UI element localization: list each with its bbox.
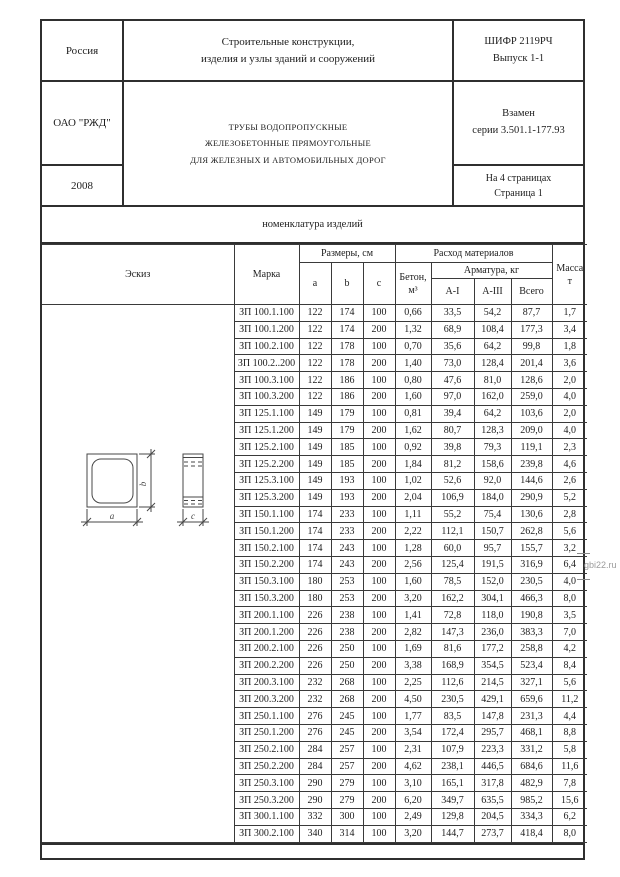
value-cell: 2,56	[395, 556, 431, 573]
value-cell: 253	[331, 590, 363, 607]
value-cell: 144,7	[431, 825, 474, 842]
value-cell: 0,92	[395, 439, 431, 456]
value-cell: 100	[363, 607, 395, 624]
mark-cell: ЗП 250.3.200	[234, 792, 299, 809]
value-cell: 1,62	[395, 422, 431, 439]
value-cell: 185	[331, 456, 363, 473]
mark-cell: ЗП 125.1.100	[234, 405, 299, 422]
mark-cell: ЗП 150.2.100	[234, 540, 299, 557]
value-cell: 284	[299, 758, 331, 775]
value-cell: 1,7	[552, 305, 587, 322]
col-header-c: c	[363, 263, 395, 305]
value-cell: 0,70	[395, 338, 431, 355]
mark-cell: ЗП 125.2.100	[234, 439, 299, 456]
value-cell: 81,2	[431, 456, 474, 473]
value-cell: 100	[363, 540, 395, 557]
value-cell: 122	[299, 355, 331, 372]
value-cell: 122	[299, 305, 331, 322]
value-cell: 11,2	[552, 691, 587, 708]
col-header-materials: Расход материалов	[395, 245, 552, 263]
year-cell: 2008	[42, 166, 124, 205]
value-cell: 144,6	[511, 472, 552, 489]
value-cell: 149	[299, 456, 331, 473]
value-cell: 1,60	[395, 388, 431, 405]
value-cell: 243	[331, 540, 363, 557]
value-cell: 200	[363, 724, 395, 741]
mark-cell: ЗП 100.2..200	[234, 355, 299, 372]
pipe-cross-section-sketch: b a c	[42, 447, 234, 542]
value-cell: 2,8	[552, 506, 587, 523]
value-cell: 0,66	[395, 305, 431, 322]
value-cell: 279	[331, 775, 363, 792]
value-cell: 239,8	[511, 456, 552, 473]
value-cell: 6,20	[395, 792, 431, 809]
value-cell: 200	[363, 422, 395, 439]
value-cell: 4,0	[552, 573, 587, 590]
value-cell: 39,4	[431, 405, 474, 422]
value-cell: 290,9	[511, 489, 552, 506]
value-cell: 295,7	[474, 724, 511, 741]
mark-cell: ЗП 200.3.100	[234, 674, 299, 691]
value-cell: 122	[299, 388, 331, 405]
value-cell: 55,2	[431, 506, 474, 523]
value-cell: 5,2	[552, 489, 587, 506]
mark-cell: ЗП 250.2.100	[234, 741, 299, 758]
value-cell: 284	[299, 741, 331, 758]
col-header-rebar: Арматура, кг	[431, 263, 552, 279]
value-cell: 80,7	[431, 422, 474, 439]
value-cell: 317,8	[474, 775, 511, 792]
title-block: Россия Строительные конструкции, изделия…	[42, 21, 583, 205]
value-cell: 165,1	[431, 775, 474, 792]
value-cell: 290	[299, 792, 331, 809]
value-cell: 193	[331, 489, 363, 506]
value-cell: 2,31	[395, 741, 431, 758]
value-cell: 446,5	[474, 758, 511, 775]
value-cell: 149	[299, 489, 331, 506]
product-title-cell: ТРУБЫ ВОДОПРОПУСКНЫЕ ЖЕЛЕЗОБЕТОННЫЕ ПРЯМ…	[124, 82, 454, 205]
value-cell: 150,7	[474, 523, 511, 540]
value-cell: 200	[363, 590, 395, 607]
col-header-mass: Масса т	[552, 245, 587, 305]
value-cell: 11,6	[552, 758, 587, 775]
value-cell: 466,3	[511, 590, 552, 607]
value-cell: 250	[331, 640, 363, 657]
value-cell: 112,1	[431, 523, 474, 540]
value-cell: 1,40	[395, 355, 431, 372]
nomenclature-table-wrap: Эскиз Марка Размеры, см Расход материало…	[42, 242, 583, 843]
value-cell: 180	[299, 573, 331, 590]
value-cell: 174	[331, 305, 363, 322]
value-cell: 72,8	[431, 607, 474, 624]
value-cell: 214,5	[474, 674, 511, 691]
value-cell: 100	[363, 640, 395, 657]
value-cell: 162,0	[474, 388, 511, 405]
value-cell: 4,50	[395, 691, 431, 708]
value-cell: 2,04	[395, 489, 431, 506]
value-cell: 200	[363, 489, 395, 506]
value-cell: 99,8	[511, 338, 552, 355]
sketch-cell: b a c	[42, 305, 234, 843]
value-cell: 174	[299, 556, 331, 573]
value-cell: 262,8	[511, 523, 552, 540]
value-cell: 4,2	[552, 640, 587, 657]
value-cell: 112,6	[431, 674, 474, 691]
value-cell: 2,49	[395, 808, 431, 825]
value-cell: 332	[299, 808, 331, 825]
value-cell: 226	[299, 657, 331, 674]
value-cell: 155,7	[511, 540, 552, 557]
document-sheet: Россия Строительные конструкции, изделия…	[40, 19, 585, 860]
value-cell: 4,0	[552, 388, 587, 405]
value-cell: 200	[363, 355, 395, 372]
value-cell: 128,3	[474, 422, 511, 439]
series-title-cell: Строительные конструкции, изделия и узлы…	[124, 21, 454, 82]
value-cell: 245	[331, 724, 363, 741]
value-cell: 125,4	[431, 556, 474, 573]
value-cell: 3,20	[395, 590, 431, 607]
value-cell: 5,6	[552, 674, 587, 691]
mark-cell: ЗП 150.2.200	[234, 556, 299, 573]
value-cell: 174	[331, 321, 363, 338]
value-cell: 230,5	[511, 573, 552, 590]
value-cell: 245	[331, 708, 363, 725]
value-cell: 100	[363, 775, 395, 792]
value-cell: 1,84	[395, 456, 431, 473]
value-cell: 300	[331, 808, 363, 825]
value-cell: 100	[363, 338, 395, 355]
value-cell: 276	[299, 708, 331, 725]
mark-cell: ЗП 100.2.100	[234, 338, 299, 355]
mark-cell: ЗП 100.1.100	[234, 305, 299, 322]
value-cell: 200	[363, 792, 395, 809]
value-cell: 233	[331, 523, 363, 540]
mark-cell: ЗП 300.2.100	[234, 825, 299, 842]
value-cell: 8,0	[552, 825, 587, 842]
mark-cell: ЗП 250.1.200	[234, 724, 299, 741]
col-header-mark: Марка	[234, 245, 299, 305]
value-cell: 179	[331, 405, 363, 422]
value-cell: 73,0	[431, 355, 474, 372]
mark-cell: ЗП 125.2.200	[234, 456, 299, 473]
value-cell: 238	[331, 624, 363, 641]
value-cell: 190,8	[511, 607, 552, 624]
mark-cell: ЗП 100.3.200	[234, 388, 299, 405]
value-cell: 304,1	[474, 590, 511, 607]
value-cell: 340	[299, 825, 331, 842]
value-cell: 122	[299, 321, 331, 338]
value-cell: 1,60	[395, 573, 431, 590]
value-cell: 7,8	[552, 775, 587, 792]
col-header-a: a	[299, 263, 331, 305]
nomenclature-band: номенклатура изделий	[42, 205, 583, 242]
value-cell: 3,38	[395, 657, 431, 674]
value-cell: 193	[331, 472, 363, 489]
value-cell: 429,1	[474, 691, 511, 708]
value-cell: 106,9	[431, 489, 474, 506]
value-cell: 200	[363, 523, 395, 540]
value-cell: 100	[363, 825, 395, 842]
value-cell: 230,5	[431, 691, 474, 708]
value-cell: 186	[331, 372, 363, 389]
value-cell: 314	[331, 825, 363, 842]
value-cell: 2,0	[552, 405, 587, 422]
value-cell: 52,6	[431, 472, 474, 489]
col-header-dimensions: Размеры, см	[299, 245, 395, 263]
col-header-total: Всего	[511, 279, 552, 305]
value-cell: 60,0	[431, 540, 474, 557]
col-header-aiii: А-III	[474, 279, 511, 305]
value-cell: 349,7	[431, 792, 474, 809]
value-cell: 54,2	[474, 305, 511, 322]
value-cell: 523,4	[511, 657, 552, 674]
value-cell: 209,0	[511, 422, 552, 439]
value-cell: 334,3	[511, 808, 552, 825]
value-cell: 191,5	[474, 556, 511, 573]
value-cell: 177,2	[474, 640, 511, 657]
value-cell: 226	[299, 624, 331, 641]
value-cell: 79,3	[474, 439, 511, 456]
value-cell: 100	[363, 472, 395, 489]
value-cell: 92,0	[474, 472, 511, 489]
value-cell: 200	[363, 758, 395, 775]
value-cell: 238	[331, 607, 363, 624]
value-cell: 635,5	[474, 792, 511, 809]
value-cell: 5,8	[552, 741, 587, 758]
value-cell: 1,41	[395, 607, 431, 624]
value-cell: 1,77	[395, 708, 431, 725]
value-cell: 100	[363, 674, 395, 691]
value-cell: 174	[299, 523, 331, 540]
value-cell: 276	[299, 724, 331, 741]
value-cell: 1,28	[395, 540, 431, 557]
value-cell: 4,0	[552, 422, 587, 439]
value-cell: 100	[363, 808, 395, 825]
mark-cell: ЗП 150.1.100	[234, 506, 299, 523]
value-cell: 231,3	[511, 708, 552, 725]
value-cell: 78,5	[431, 573, 474, 590]
value-cell: 6,2	[552, 808, 587, 825]
sketch-label-a: a	[110, 511, 115, 521]
value-cell: 35,6	[431, 338, 474, 355]
value-cell: 243	[331, 556, 363, 573]
value-cell: 232	[299, 674, 331, 691]
value-cell: 185	[331, 439, 363, 456]
value-cell: 223,3	[474, 741, 511, 758]
value-cell: 273,7	[474, 825, 511, 842]
value-cell: 178	[331, 338, 363, 355]
value-cell: 3,54	[395, 724, 431, 741]
mark-cell: ЗП 200.2.100	[234, 640, 299, 657]
value-cell: 149	[299, 422, 331, 439]
value-cell: 174	[299, 506, 331, 523]
country-cell: Россия	[42, 21, 124, 82]
value-cell: 257	[331, 741, 363, 758]
value-cell: 1,69	[395, 640, 431, 657]
value-cell: 226	[299, 640, 331, 657]
watermark: gbi22.ru	[584, 560, 617, 570]
value-cell: 418,4	[511, 825, 552, 842]
value-cell: 3,4	[552, 321, 587, 338]
nomenclature-table: Эскиз Марка Размеры, см Расход материало…	[42, 244, 587, 843]
value-cell: 47,6	[431, 372, 474, 389]
value-cell: 128,4	[474, 355, 511, 372]
mark-cell: ЗП 200.1.200	[234, 624, 299, 641]
value-cell: 33,5	[431, 305, 474, 322]
value-cell: 147,8	[474, 708, 511, 725]
mark-cell: ЗП 200.2.200	[234, 657, 299, 674]
value-cell: 8,4	[552, 657, 587, 674]
value-cell: 290	[299, 775, 331, 792]
value-cell: 64,2	[474, 338, 511, 355]
value-cell: 268	[331, 674, 363, 691]
value-cell: 468,1	[511, 724, 552, 741]
value-cell: 81,6	[431, 640, 474, 657]
value-cell: 6,4	[552, 556, 587, 573]
value-cell: 178	[331, 355, 363, 372]
value-cell: 2,22	[395, 523, 431, 540]
value-cell: 4,62	[395, 758, 431, 775]
value-cell: 179	[331, 422, 363, 439]
value-cell: 81,0	[474, 372, 511, 389]
value-cell: 331,2	[511, 741, 552, 758]
sketch-inner-opening	[92, 459, 133, 503]
value-cell: 100	[363, 573, 395, 590]
value-cell: 2,25	[395, 674, 431, 691]
mark-cell: ЗП 100.3.100	[234, 372, 299, 389]
value-cell: 122	[299, 372, 331, 389]
mark-cell: ЗП 150.3.200	[234, 590, 299, 607]
value-cell: 100	[363, 506, 395, 523]
mark-cell: ЗП 200.1.100	[234, 607, 299, 624]
value-cell: 482,9	[511, 775, 552, 792]
value-cell: 87,7	[511, 305, 552, 322]
registration-tick	[577, 553, 590, 554]
mark-cell: ЗП 125.3.200	[234, 489, 299, 506]
value-cell: 259,0	[511, 388, 552, 405]
page-count-cell: На 4 страницах Страница 1	[454, 166, 583, 205]
value-cell: 2,82	[395, 624, 431, 641]
value-cell: 162,2	[431, 590, 474, 607]
value-cell: 1,8	[552, 338, 587, 355]
registration-tick	[577, 579, 590, 580]
sketch-label-c: c	[191, 511, 195, 521]
value-cell: 684,6	[511, 758, 552, 775]
value-cell: 172,4	[431, 724, 474, 741]
cipher-cell: ШИФР 2119РЧ Выпуск 1-1	[454, 21, 583, 82]
value-cell: 3,5	[552, 607, 587, 624]
col-header-ai: А-I	[431, 279, 474, 305]
value-cell: 354,5	[474, 657, 511, 674]
value-cell: 180	[299, 590, 331, 607]
value-cell: 200	[363, 456, 395, 473]
value-cell: 100	[363, 741, 395, 758]
organization-cell: ОАО "РЖД"	[42, 82, 124, 166]
value-cell: 152,0	[474, 573, 511, 590]
mark-cell: ЗП 125.1.200	[234, 422, 299, 439]
value-cell: 3,6	[552, 355, 587, 372]
value-cell: 149	[299, 439, 331, 456]
value-cell: 64,2	[474, 405, 511, 422]
value-cell: 1,02	[395, 472, 431, 489]
value-cell: 250	[331, 657, 363, 674]
value-cell: 100	[363, 372, 395, 389]
value-cell: 258,8	[511, 640, 552, 657]
value-cell: 327,1	[511, 674, 552, 691]
value-cell: 204,5	[474, 808, 511, 825]
value-cell: 2,6	[552, 472, 587, 489]
value-cell: 253	[331, 573, 363, 590]
mark-cell: ЗП 150.1.200	[234, 523, 299, 540]
value-cell: 4,6	[552, 456, 587, 473]
value-cell: 201,4	[511, 355, 552, 372]
value-cell: 15,6	[552, 792, 587, 809]
value-cell: 200	[363, 691, 395, 708]
value-cell: 118,0	[474, 607, 511, 624]
value-cell: 383,3	[511, 624, 552, 641]
value-cell: 177,3	[511, 321, 552, 338]
value-cell: 186	[331, 388, 363, 405]
value-cell: 1,11	[395, 506, 431, 523]
value-cell: 0,81	[395, 405, 431, 422]
value-cell: 149	[299, 405, 331, 422]
value-cell: 233	[331, 506, 363, 523]
value-cell: 108,4	[474, 321, 511, 338]
value-cell: 122	[299, 338, 331, 355]
value-cell: 238,1	[431, 758, 474, 775]
value-cell: 128,6	[511, 372, 552, 389]
value-cell: 236,0	[474, 624, 511, 641]
mark-cell: ЗП 250.1.100	[234, 708, 299, 725]
value-cell: 8,0	[552, 590, 587, 607]
value-cell: 147,3	[431, 624, 474, 641]
value-cell: 200	[363, 657, 395, 674]
col-header-sketch: Эскиз	[42, 245, 234, 305]
value-cell: 158,6	[474, 456, 511, 473]
value-cell: 4,4	[552, 708, 587, 725]
value-cell: 5,6	[552, 523, 587, 540]
value-cell: 95,7	[474, 540, 511, 557]
value-cell: 659,6	[511, 691, 552, 708]
value-cell: 985,2	[511, 792, 552, 809]
value-cell: 174	[299, 540, 331, 557]
value-cell: 168,9	[431, 657, 474, 674]
value-cell: 200	[363, 388, 395, 405]
value-cell: 107,9	[431, 741, 474, 758]
value-cell: 83,5	[431, 708, 474, 725]
value-cell: 200	[363, 321, 395, 338]
mark-cell: ЗП 100.1.200	[234, 321, 299, 338]
value-cell: 279	[331, 792, 363, 809]
value-cell: 103,6	[511, 405, 552, 422]
value-cell: 3,20	[395, 825, 431, 842]
value-cell: 97,0	[431, 388, 474, 405]
value-cell: 8,8	[552, 724, 587, 741]
mark-cell: ЗП 250.3.100	[234, 775, 299, 792]
value-cell: 184,0	[474, 489, 511, 506]
value-cell: 200	[363, 556, 395, 573]
value-cell: 100	[363, 439, 395, 456]
value-cell: 0,80	[395, 372, 431, 389]
mark-cell: ЗП 200.3.200	[234, 691, 299, 708]
sketch-label-b: b	[138, 481, 148, 486]
value-cell: 316,9	[511, 556, 552, 573]
mark-cell: ЗП 250.2.200	[234, 758, 299, 775]
value-cell: 7,0	[552, 624, 587, 641]
document-page: Россия Строительные конструкции, изделия…	[0, 0, 620, 877]
mark-cell: ЗП 125.3.100	[234, 472, 299, 489]
instead-of-cell: Взамен серии 3.501.1-177.93	[454, 82, 583, 166]
